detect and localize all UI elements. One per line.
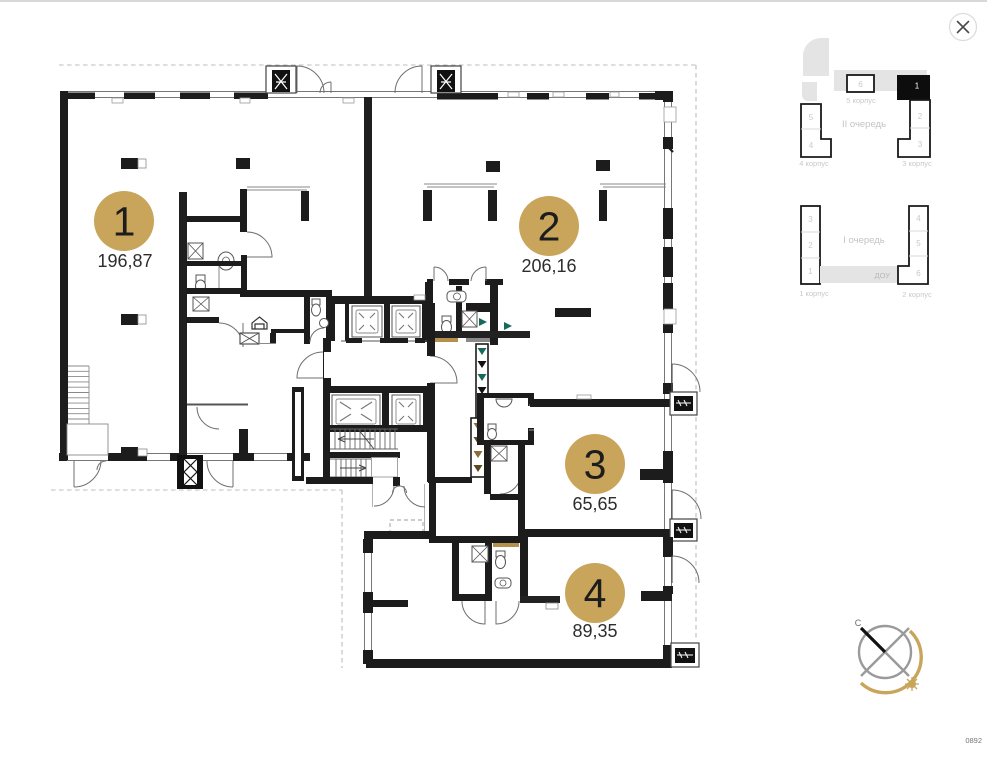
svg-text:1: 1 — [808, 267, 813, 276]
svg-text:3: 3 — [584, 442, 607, 488]
svg-text:II очередь: II очередь — [842, 119, 886, 130]
svg-text:I очередь: I очередь — [843, 235, 884, 246]
svg-text:ДОУ: ДОУ — [874, 271, 890, 280]
svg-text:1: 1 — [113, 199, 136, 245]
svg-text:С: С — [855, 618, 862, 628]
svg-text:206,16: 206,16 — [521, 256, 576, 276]
svg-text:4: 4 — [916, 214, 921, 223]
svg-text:4 корпус: 4 корпус — [799, 159, 829, 168]
svg-text:196,87: 196,87 — [97, 251, 152, 271]
svg-text:5: 5 — [916, 239, 921, 248]
svg-text:3: 3 — [808, 215, 813, 224]
svg-text:65,65: 65,65 — [572, 494, 617, 514]
svg-text:6: 6 — [858, 80, 863, 89]
svg-text:6: 6 — [916, 269, 921, 278]
svg-text:2 корпус: 2 корпус — [902, 290, 932, 299]
svg-text:1 корпус: 1 корпус — [799, 289, 829, 298]
svg-text:3: 3 — [918, 140, 923, 149]
svg-text:0892: 0892 — [965, 736, 982, 745]
svg-text:5 корпус: 5 корпус — [846, 96, 876, 105]
svg-text:3 корпус: 3 корпус — [902, 159, 932, 168]
svg-text:4: 4 — [584, 571, 607, 617]
svg-text:2: 2 — [808, 241, 813, 250]
svg-text:2: 2 — [538, 204, 561, 250]
svg-text:5: 5 — [809, 113, 814, 122]
svg-text:4: 4 — [809, 141, 814, 150]
svg-text:2: 2 — [918, 112, 923, 121]
svg-text:89,35: 89,35 — [572, 621, 617, 641]
svg-text:1: 1 — [915, 82, 920, 91]
